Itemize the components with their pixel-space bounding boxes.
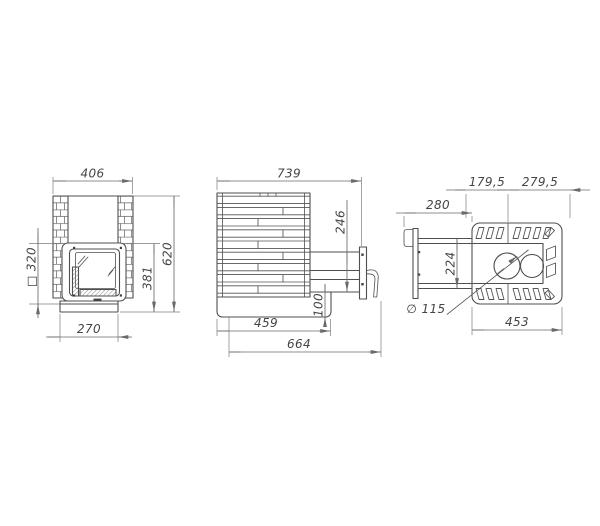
- dim-side-bottom-offset: 100: [312, 293, 326, 317]
- dim-side-body-depth: 459: [254, 316, 278, 330]
- dim-side-tunnel-height: 246: [334, 210, 348, 234]
- second-opening: [521, 255, 544, 278]
- dim-top-flue-left: 179,5: [469, 175, 505, 189]
- dim-front-firebox: □ 320: [25, 247, 39, 287]
- dim-side-overall-depth: 664: [287, 337, 311, 351]
- flue-diameter-leader: [447, 250, 528, 314]
- door-grate: [80, 290, 116, 297]
- top-flange: [413, 229, 418, 299]
- top-view: 179,5 279,5 280 224 453 ∅ 115: [396, 175, 590, 335]
- slat-lines: [217, 193, 310, 293]
- dim-top-body-width: 453: [505, 315, 529, 329]
- dim-top-flue-diameter: ∅ 115: [406, 302, 445, 316]
- side-dimensions: 739 246 100 459 664: [217, 167, 381, 358]
- top-dimensions: 179,5 279,5 280 224 453 ∅ 115: [396, 175, 590, 335]
- drawing-canvas: 406 □ 320 381 620 270: [0, 0, 600, 526]
- dim-top-tunnel-extension: 280: [426, 198, 450, 212]
- side-tunnel: [310, 252, 360, 292]
- slat-body: [217, 193, 310, 297]
- dim-top-tunnel-width: 224: [444, 251, 458, 275]
- dim-front-body-height: 381: [141, 266, 155, 290]
- side-view: 739 246 100 459 664: [217, 167, 381, 358]
- front-view: 406 □ 320 381 620 270: [25, 167, 181, 343]
- door-handle: [73, 267, 79, 296]
- dim-side-total-depth: 739: [277, 167, 301, 181]
- dim-front-top-width: 406: [80, 167, 104, 181]
- dim-top-flue-right: 279,5: [522, 175, 558, 189]
- side-door-handle: [367, 270, 378, 297]
- dim-front-base-width: 270: [77, 322, 101, 336]
- technical-drawing: 406 □ 320 381 620 270: [0, 0, 600, 526]
- dim-front-total-height: 620: [161, 242, 175, 266]
- pedestal: [60, 301, 118, 312]
- top-door-handle: [404, 230, 413, 247]
